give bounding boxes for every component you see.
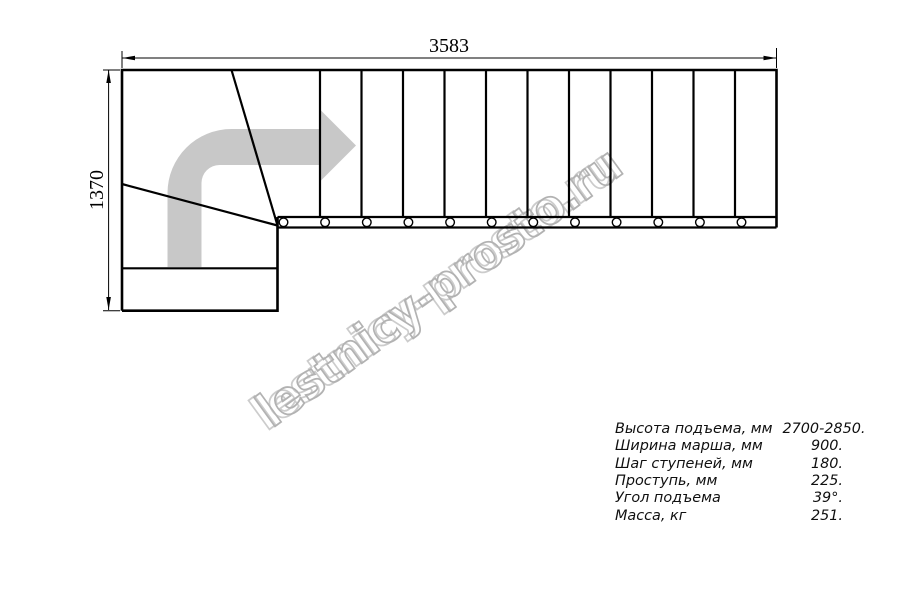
spec-value: 2700-2850. <box>782 421 865 438</box>
tread-lines <box>320 70 735 217</box>
specs-table: Высота подъема, мм 2700-2850. Ширина мар… <box>615 421 843 525</box>
height-dimension: 1370 <box>86 70 120 311</box>
spec-row: Шаг ступеней, мм 180. <box>615 456 843 473</box>
spec-label: Шаг ступеней, мм <box>615 456 753 473</box>
baluster-circle <box>321 218 330 227</box>
spec-value: 180. <box>811 456 843 473</box>
walk-direction-arrow-icon <box>168 110 357 267</box>
spec-row: Высота подъема, мм 2700-2850. <box>615 421 843 438</box>
spec-row: Проступь, мм 225. <box>615 473 843 490</box>
spec-label: Проступь, мм <box>615 473 717 490</box>
baluster-circle <box>529 218 538 227</box>
width-dimension: 3583 <box>122 35 777 68</box>
baluster-circle <box>404 218 413 227</box>
baluster-circle <box>696 218 705 227</box>
spec-row: Угол подъема 39°. <box>615 490 843 507</box>
height-arrow-bottom-icon <box>106 297 111 310</box>
spec-row: Масса, кг 251. <box>615 508 843 525</box>
spec-label: Высота подъема, мм <box>615 421 772 438</box>
spec-label: Угол подъема <box>615 490 721 507</box>
width-dimension-label: 3583 <box>429 35 469 57</box>
spec-label: Масса, кг <box>615 508 686 525</box>
baluster-circle <box>363 218 372 227</box>
spec-value: 39°. <box>813 490 843 507</box>
baluster-circle <box>612 218 621 227</box>
width-arrow-left-icon <box>122 56 135 61</box>
spec-value: 225. <box>811 473 843 490</box>
watermark-text: lestnicy-prosto.ru <box>247 137 633 438</box>
baluster-circle <box>737 218 746 227</box>
spec-value: 900. <box>811 438 843 455</box>
spec-value: 251. <box>811 508 843 525</box>
width-arrow-right-icon <box>764 56 777 61</box>
baluster-circle <box>279 218 288 227</box>
watermark: lestnicy-prosto.ru lestnicy-prosto.ru <box>241 137 632 441</box>
baluster-circle <box>654 218 663 227</box>
spec-row: Ширина марша, мм 900. <box>615 438 843 455</box>
baluster-circle <box>571 218 580 227</box>
spec-label: Ширина марша, мм <box>615 438 763 455</box>
baluster-circle <box>487 218 496 227</box>
baluster-circle <box>446 218 455 227</box>
height-arrow-top-icon <box>106 70 111 83</box>
height-dimension-label: 1370 <box>86 170 108 210</box>
page: lestnicy-prosto.ru lestnicy-prosto.ru <box>0 0 900 600</box>
